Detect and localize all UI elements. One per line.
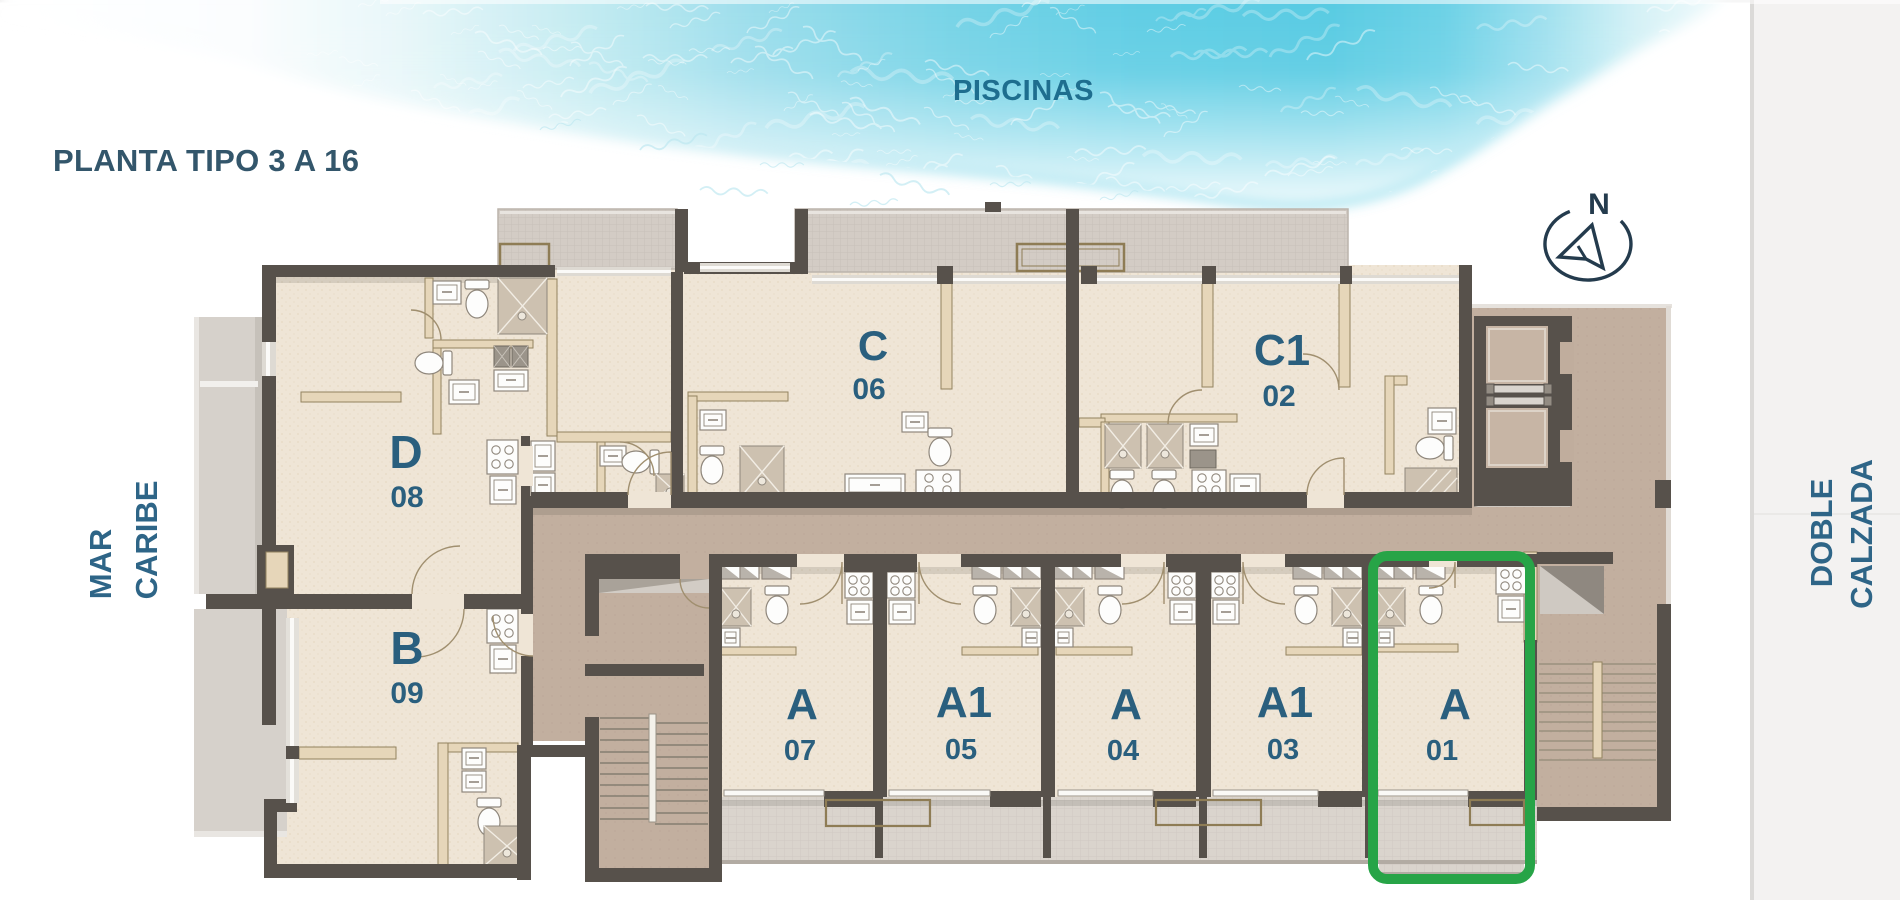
- svg-text:A: A: [1439, 680, 1471, 729]
- svg-text:07: 07: [784, 735, 816, 767]
- svg-text:D: D: [389, 426, 422, 478]
- svg-text:02: 02: [1262, 380, 1295, 413]
- svg-text:A1: A1: [936, 678, 992, 727]
- svg-text:C: C: [858, 322, 888, 369]
- svg-text:08: 08: [390, 481, 423, 514]
- svg-text:PLANTA TIPO 3 A 16: PLANTA TIPO 3 A 16: [53, 143, 359, 178]
- svg-text:N: N: [1588, 188, 1610, 221]
- svg-text:PISCINAS: PISCINAS: [953, 75, 1094, 107]
- svg-text:CALZADA: CALZADA: [1844, 459, 1879, 609]
- svg-text:A1: A1: [1257, 678, 1313, 727]
- svg-text:03: 03: [1267, 734, 1299, 766]
- svg-text:A: A: [1110, 680, 1142, 729]
- svg-text:CARIBE: CARIBE: [129, 481, 164, 600]
- svg-text:B: B: [390, 622, 423, 674]
- svg-text:04: 04: [1107, 735, 1139, 767]
- svg-text:C1: C1: [1254, 326, 1310, 375]
- svg-text:09: 09: [390, 677, 423, 710]
- svg-text:01: 01: [1426, 735, 1458, 767]
- svg-text:06: 06: [852, 373, 885, 406]
- svg-text:DOBLE: DOBLE: [1804, 479, 1839, 588]
- svg-text:MAR: MAR: [83, 529, 118, 600]
- svg-text:05: 05: [945, 734, 977, 766]
- svg-text:A: A: [786, 680, 818, 729]
